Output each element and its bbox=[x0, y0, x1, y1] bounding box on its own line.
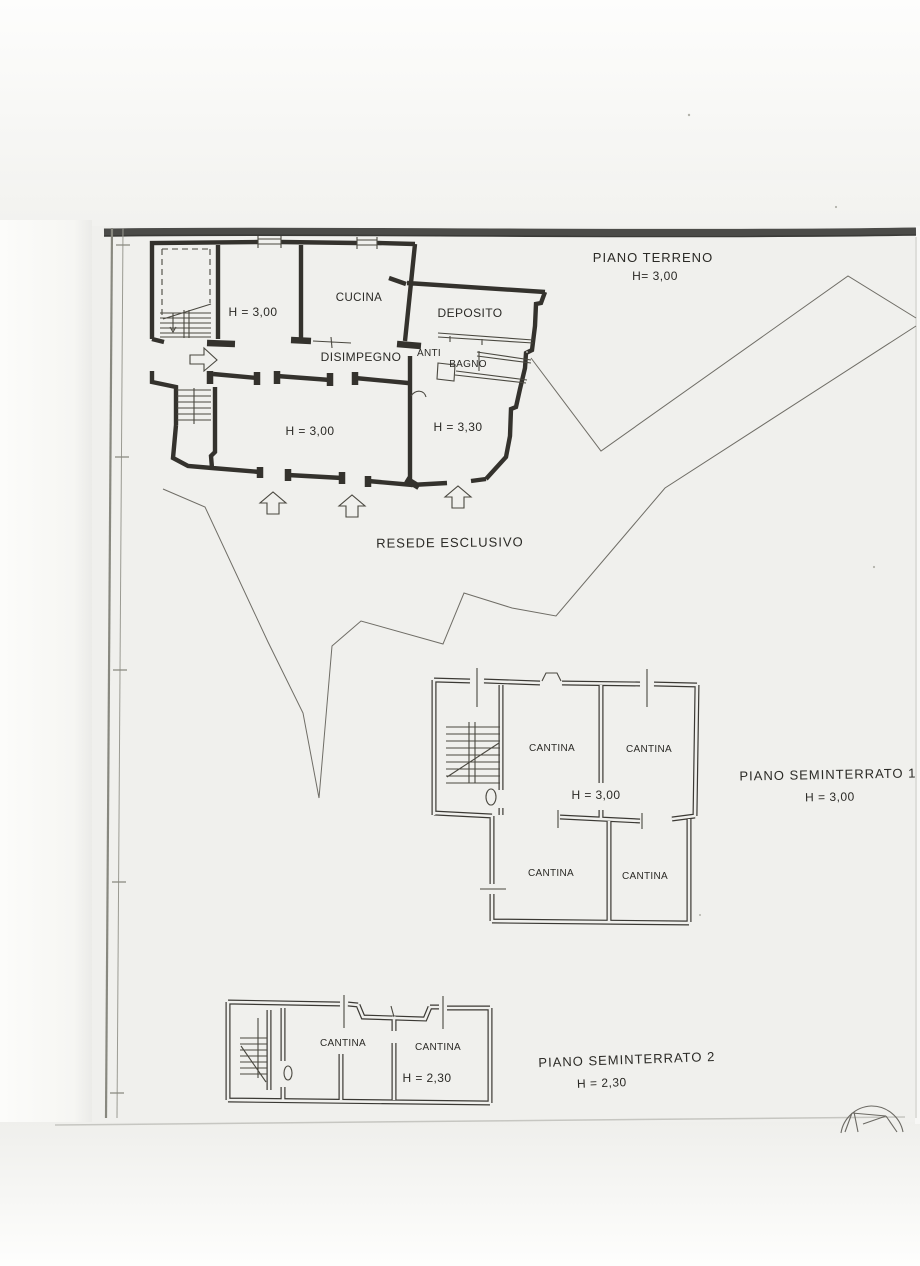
plan-title-seminterrato-1: PIANO SEMINTERRATO 1 bbox=[739, 765, 916, 783]
scan-fold-band bbox=[104, 231, 916, 232]
room-label-bagno: BAGNO bbox=[449, 359, 487, 370]
scanned-floorplan-page: H = 3,00 CUCINA DEPOSITO DISIMPEGNO ANTI… bbox=[0, 0, 920, 1266]
room-height-label: H = 3,30 bbox=[434, 420, 483, 434]
plan-height-seminterrato-1: H = 3,00 bbox=[805, 790, 855, 805]
plan-height-seminterrato-2: H = 2,30 bbox=[577, 1075, 627, 1091]
room-label-cantina: CANTINA bbox=[529, 743, 575, 754]
room-label-deposito: DEPOSITO bbox=[438, 306, 503, 320]
speck bbox=[688, 114, 690, 116]
room-height-label: H = 2,30 bbox=[403, 1071, 452, 1085]
room-label-anti: ANTI bbox=[417, 348, 441, 359]
room-label-cantina: CANTINA bbox=[415, 1042, 461, 1053]
room-label-cantina: CANTINA bbox=[622, 871, 668, 882]
paper-bottom-edge-area bbox=[0, 1122, 920, 1266]
paper-left-margin bbox=[0, 220, 92, 1126]
speck bbox=[873, 566, 875, 568]
room-label-cantina: CANTINA bbox=[320, 1038, 366, 1049]
plan-title-terreno: PIANO TERRENO bbox=[593, 250, 713, 265]
room-height-label: H = 3,00 bbox=[572, 788, 621, 802]
room-label-cantina: CANTINA bbox=[626, 744, 672, 755]
speck bbox=[699, 914, 701, 916]
paper-sheet bbox=[88, 226, 920, 1126]
courtyard-label: RESEDE ESCLUSIVO bbox=[376, 534, 524, 551]
room-label-cantina: CANTINA bbox=[528, 868, 574, 879]
room-height-label: H = 3,00 bbox=[286, 424, 335, 438]
plan-height-terreno: H= 3,00 bbox=[632, 269, 678, 283]
room-label-disimpegno: DISIMPEGNO bbox=[321, 350, 402, 364]
speck bbox=[526, 351, 528, 353]
speck bbox=[835, 206, 837, 208]
room-height-label: H = 3,00 bbox=[229, 305, 278, 319]
floorplan-drawing: H = 3,00 CUCINA DEPOSITO DISIMPEGNO ANTI… bbox=[0, 0, 920, 1266]
paper-top-margin bbox=[0, 0, 920, 226]
room-label-cucina: CUCINA bbox=[336, 292, 383, 304]
